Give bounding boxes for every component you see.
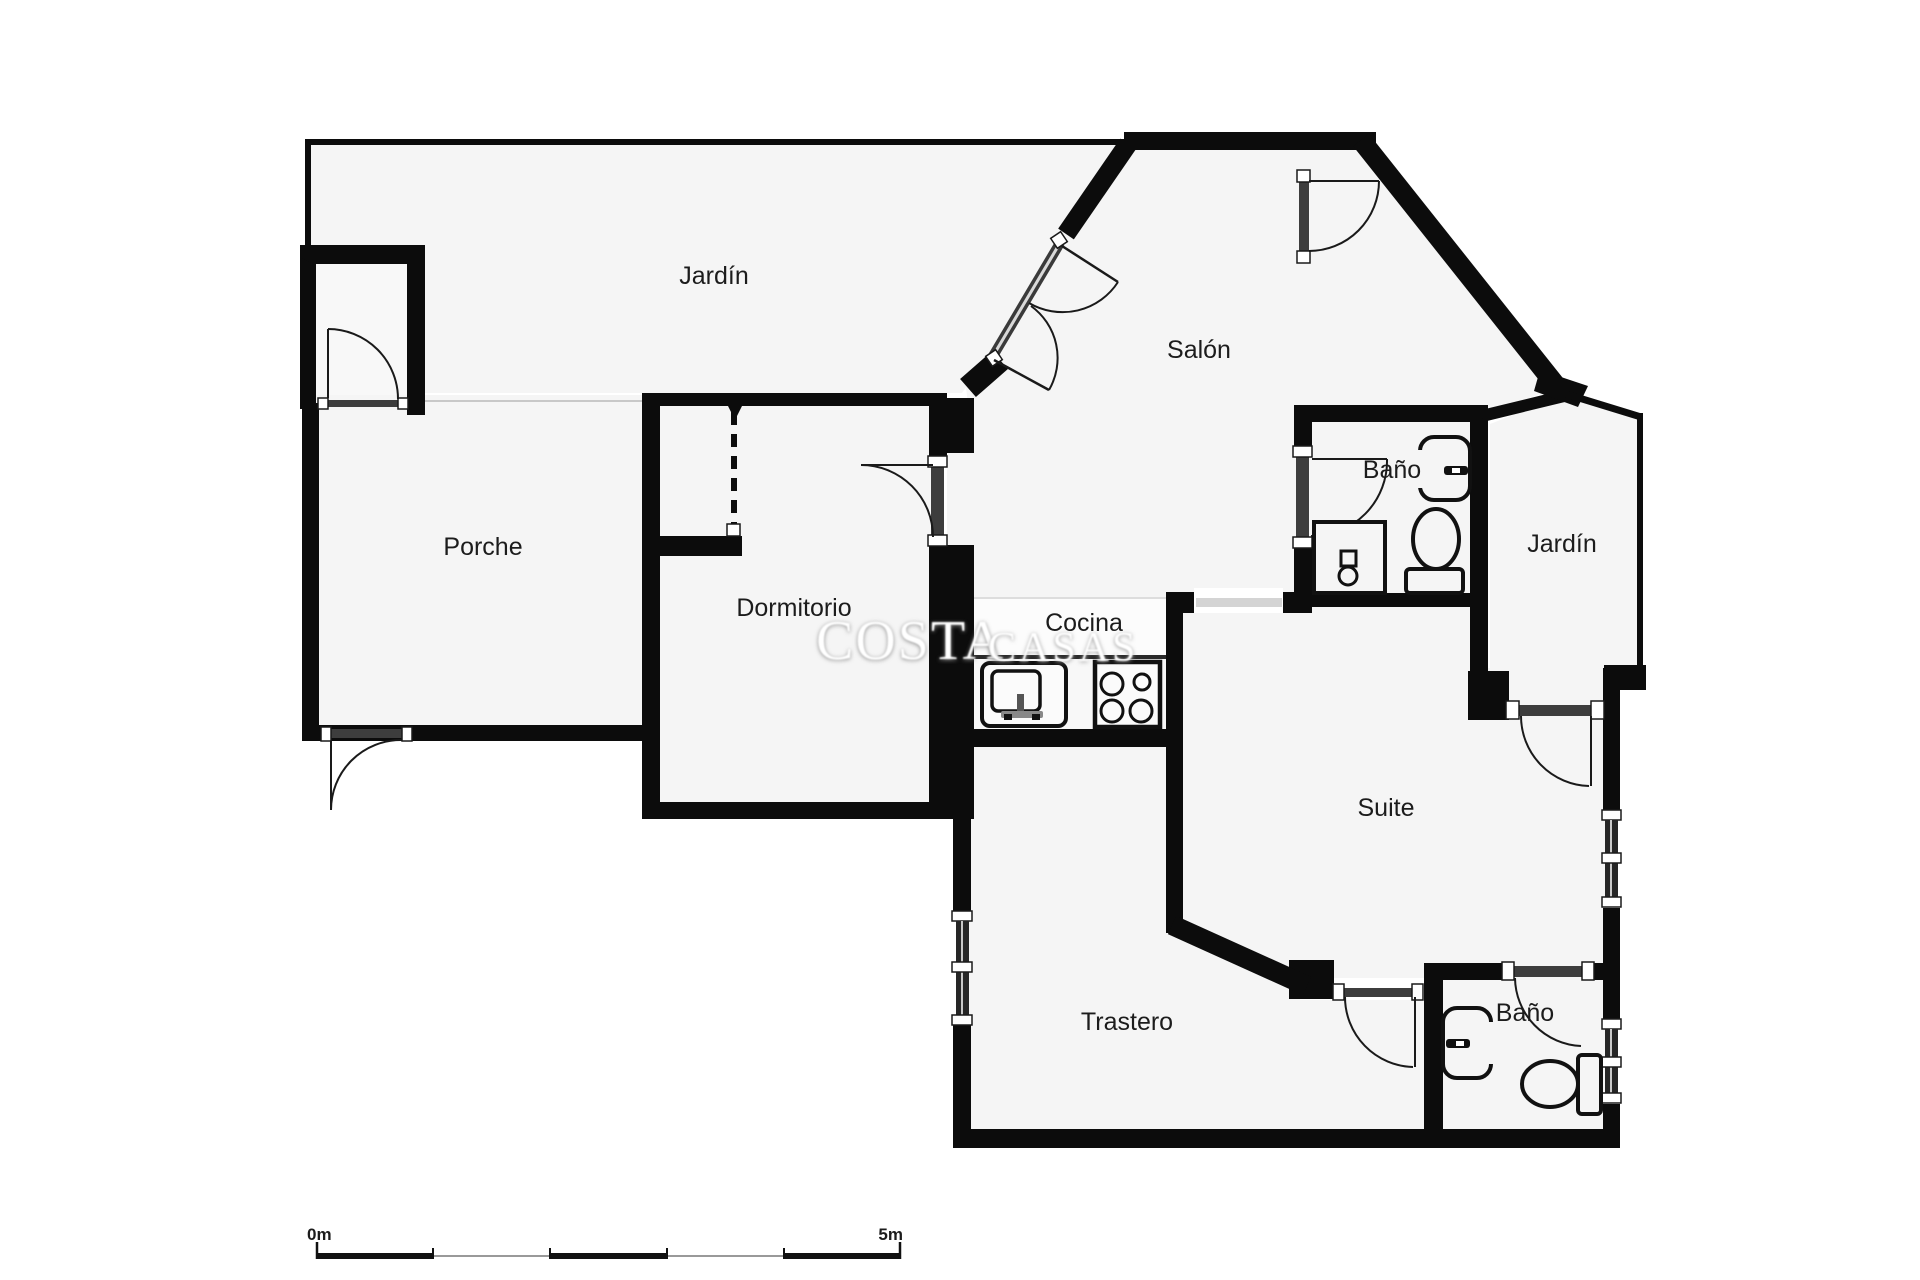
svg-text:Salón: Salón xyxy=(1167,336,1231,364)
svg-text:Trastero: Trastero xyxy=(1081,1008,1173,1036)
svg-text:Jardín: Jardín xyxy=(1527,530,1596,558)
svg-text:0m: 0m xyxy=(307,1225,332,1244)
svg-text:Dormitorio: Dormitorio xyxy=(736,594,851,622)
svg-text:Porche: Porche xyxy=(443,533,522,561)
svg-text:Baño: Baño xyxy=(1496,999,1554,1027)
svg-text:Cocina: Cocina xyxy=(1045,609,1123,637)
svg-text:5m: 5m xyxy=(878,1225,903,1244)
svg-text:Jardín: Jardín xyxy=(679,262,748,290)
svg-text:Baño: Baño xyxy=(1363,456,1421,484)
svg-text:Suite: Suite xyxy=(1358,794,1415,822)
